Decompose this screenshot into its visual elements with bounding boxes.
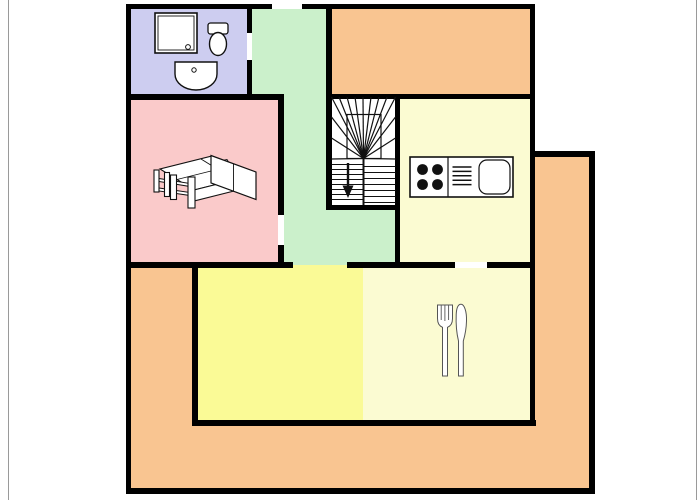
bed-icon <box>154 156 256 209</box>
floor-plan-page <box>0 0 700 500</box>
knife-icon <box>456 304 466 376</box>
kitchen-counter-icon <box>410 157 513 197</box>
fixtures-layer <box>0 0 700 500</box>
stairs-icon <box>332 97 396 205</box>
floor-plan <box>0 0 700 500</box>
washbasin-icon <box>175 62 217 90</box>
down-arrow-icon <box>343 163 354 198</box>
shower-icon <box>155 13 197 53</box>
toilet-icon <box>208 23 228 56</box>
fork-icon <box>438 305 453 376</box>
